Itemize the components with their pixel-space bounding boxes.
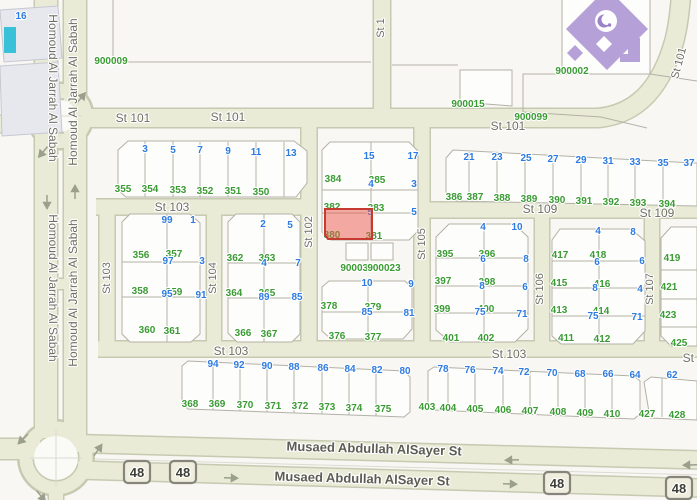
unit-number-label: 11 bbox=[251, 147, 262, 158]
parcel-number-label: 423 bbox=[660, 310, 677, 321]
parcel-number-label: 428 bbox=[669, 410, 686, 421]
unit-number-label: 25 bbox=[520, 153, 532, 164]
unit-number-label: 91 bbox=[195, 290, 207, 301]
unit-number-label: 66 bbox=[602, 369, 614, 380]
unit-number-label: 15 bbox=[363, 151, 375, 162]
parcel-number-label: 371 bbox=[265, 401, 282, 412]
parcel-number-label: 410 bbox=[604, 409, 621, 420]
parcel-number-label: 402 bbox=[478, 333, 495, 344]
unit-number-label: 4 bbox=[637, 284, 643, 295]
street-name-label: St 101 bbox=[116, 111, 151, 125]
parcel-number-label: 409 bbox=[577, 408, 594, 419]
street-name-label: St 106 bbox=[534, 273, 546, 305]
parcel-number-label: 408 bbox=[550, 407, 567, 418]
unit-number-label: 27 bbox=[547, 154, 559, 165]
unit-number-label: 31 bbox=[602, 156, 614, 167]
star-icon bbox=[608, 23, 612, 27]
unit-number-label: 23 bbox=[491, 152, 503, 163]
parcel-number-label: 368 bbox=[182, 399, 199, 410]
parcel-number-label: 900023 bbox=[367, 263, 401, 274]
parcel-number-label: 390 bbox=[549, 195, 566, 206]
parcel-number-label: 393 bbox=[630, 198, 647, 209]
parcel-number-label: 355 bbox=[115, 184, 132, 195]
unit-number-label: 6 bbox=[639, 256, 645, 267]
parcel-number-label: 384 bbox=[325, 174, 342, 185]
unit-number-label: 7 bbox=[197, 145, 203, 156]
unit-number-label: 4 bbox=[595, 226, 601, 237]
unit-number-label: 21 bbox=[463, 152, 475, 163]
parcel-number-label: 374 bbox=[346, 403, 363, 414]
unit-number-label: 10 bbox=[361, 278, 373, 289]
unit-number-label: 84 bbox=[344, 364, 356, 375]
unit-number-label: 3 bbox=[411, 179, 417, 190]
unit-number-label: 1 bbox=[190, 215, 196, 226]
parcel-number-label: 389 bbox=[521, 194, 538, 205]
street-name-label: St 103 bbox=[492, 347, 527, 361]
unit-number-label: 33 bbox=[629, 157, 641, 168]
svg-text:48: 48 bbox=[130, 465, 144, 480]
unit-number-label: 78 bbox=[437, 364, 449, 375]
unit-number-label: 71 bbox=[516, 309, 528, 320]
unit-number-label: 70 bbox=[546, 368, 558, 379]
unit-number-label: 71 bbox=[631, 312, 643, 323]
parcel-number-label: 403 bbox=[419, 402, 436, 413]
parcel-number-label: 373 bbox=[319, 402, 336, 413]
street-name-label: St 102 bbox=[303, 216, 315, 248]
unit-number-label: 8 bbox=[592, 283, 598, 294]
unit-number-label: 97 bbox=[162, 256, 174, 267]
street-name-label: St 103 bbox=[683, 351, 697, 365]
parcel-number-label: 394 bbox=[659, 199, 676, 210]
unit-number-label: 2 bbox=[260, 219, 266, 230]
parcel-number-label: 366 bbox=[235, 328, 252, 339]
parcel-number-label: 352 bbox=[197, 186, 214, 197]
parcel-number-label: 360 bbox=[139, 325, 156, 336]
unit-number-label: 5 bbox=[170, 145, 176, 156]
unit-number-label: 8 bbox=[523, 254, 529, 265]
parcel-number-label: 386 bbox=[446, 192, 463, 203]
unit-number-label: 6 bbox=[480, 254, 486, 265]
parcel-number-label: 372 bbox=[292, 401, 309, 412]
street-name-label: St 103 bbox=[214, 344, 249, 358]
unit-number-label: 74 bbox=[492, 366, 504, 377]
parcel-number-label: 356 bbox=[133, 250, 150, 261]
unit-number-label: 72 bbox=[518, 367, 530, 378]
unit-number-label: 81 bbox=[403, 308, 415, 319]
unit-number-label: 5 bbox=[287, 220, 293, 231]
parcel-number-label: 395 bbox=[437, 249, 454, 260]
unit-number-label: 3 bbox=[142, 144, 148, 155]
parcel-number-label: 399 bbox=[434, 304, 451, 315]
svg-text:48: 48 bbox=[550, 476, 564, 491]
street-name-label: St 104 bbox=[207, 262, 219, 294]
unit-number-label: 13 bbox=[285, 148, 297, 159]
pool-feature bbox=[4, 27, 16, 53]
parcel-number-label: 419 bbox=[664, 253, 681, 264]
unit-number-label: 10 bbox=[511, 222, 523, 233]
parcel-number-label: 397 bbox=[435, 276, 452, 287]
unit-number-label: 4 bbox=[480, 222, 486, 233]
highlighted-parcel[interactable] bbox=[325, 209, 372, 239]
street-name-label: St 103 bbox=[101, 262, 113, 294]
parcel-number-label: 358 bbox=[132, 286, 149, 297]
parcel-number-label: 417 bbox=[552, 250, 569, 261]
map-svg: St 101St 101St 101St 101St 1St 103St 103… bbox=[0, 0, 697, 500]
unit-number-label: 9 bbox=[225, 146, 231, 157]
parcel-number-label: 354 bbox=[142, 184, 159, 195]
parcel-number-label: 900009 bbox=[94, 56, 128, 67]
unit-number-label: 95 bbox=[161, 289, 173, 300]
parcel-number-label: 353 bbox=[170, 185, 187, 196]
parcel-number-label: 388 bbox=[494, 193, 511, 204]
parcel-number-label: 391 bbox=[576, 196, 593, 207]
unit-number-label: 37 bbox=[683, 158, 695, 169]
parcel-number-label: 378 bbox=[321, 301, 338, 312]
unit-number-label: 99 bbox=[161, 215, 173, 226]
street-name-label: St 103 bbox=[155, 200, 190, 214]
unit-number-label: 75 bbox=[587, 311, 599, 322]
street-name-label: St 101 bbox=[211, 110, 246, 124]
unit-number-label: 94 bbox=[207, 359, 219, 370]
parcel-number-label: 415 bbox=[551, 278, 568, 289]
svg-text:48: 48 bbox=[672, 481, 686, 496]
parcel-number-label: 362 bbox=[227, 253, 244, 264]
street-name-label: St 107 bbox=[644, 273, 656, 305]
parcel-number-label: 411 bbox=[558, 333, 575, 344]
parcel-number-label: 350 bbox=[253, 187, 270, 198]
parcel-number-label: 406 bbox=[495, 405, 512, 416]
parcel-number-label: 900002 bbox=[555, 66, 589, 77]
parcel-number-label: 351 bbox=[225, 186, 242, 197]
unit-number-label: 8 bbox=[630, 227, 636, 238]
unit-number-label: 68 bbox=[574, 369, 586, 380]
unit-number-label: 92 bbox=[233, 360, 245, 371]
unit-number-label: 6 bbox=[522, 282, 528, 293]
parcel-number-label: 900015 bbox=[451, 99, 485, 110]
parcel-number-label: 421 bbox=[661, 282, 678, 293]
street-name-label: Homoud Al Jarrah Al Sabah bbox=[46, 14, 60, 161]
unit-number-label: 8 bbox=[479, 281, 485, 292]
unit-number-label: 7 bbox=[295, 258, 301, 269]
unit-number-label: 35 bbox=[657, 158, 669, 169]
route-shield-icon: 48 bbox=[124, 461, 150, 483]
street-name-label: Homoud Al Jarrah Al Sabah bbox=[46, 214, 60, 361]
parcel-number-label: 405 bbox=[467, 404, 484, 415]
route-shield-icon: 48 bbox=[544, 472, 570, 494]
parcel-number-label: 425 bbox=[671, 338, 688, 349]
route-shield-icon: 48 bbox=[666, 477, 692, 499]
unit-number-label: 17 bbox=[407, 151, 419, 162]
parcel-number-label: 900099 bbox=[514, 112, 548, 123]
parcel-number-label: 412 bbox=[594, 334, 611, 345]
unit-number-label: 4 bbox=[368, 179, 374, 190]
svg-text:48: 48 bbox=[176, 465, 190, 480]
unit-number-label: 85 bbox=[361, 307, 373, 318]
parcel-number-label: 367 bbox=[261, 329, 278, 340]
street-name-label: Homoud Al Jarrah Al Sabah bbox=[66, 219, 80, 366]
unit-number-label: 82 bbox=[371, 365, 383, 376]
route-shield-icon: 48 bbox=[170, 461, 196, 483]
parcel-number-label: 407 bbox=[522, 406, 539, 417]
unit-number-label: 3 bbox=[199, 256, 205, 267]
unit-number-label: 4 bbox=[261, 258, 267, 269]
unit-number-label: 29 bbox=[575, 155, 587, 166]
parcel-number-label: 392 bbox=[603, 197, 620, 208]
parcel-number-label: 361 bbox=[164, 326, 181, 337]
parcel-number-label: 401 bbox=[443, 333, 460, 344]
unit-number-label: 80 bbox=[399, 366, 411, 377]
unit-number-label: 90 bbox=[261, 361, 273, 372]
unit-number-label: 6 bbox=[594, 257, 600, 268]
parcel-number-label: 377 bbox=[365, 332, 382, 343]
unit-number-label: 85 bbox=[291, 292, 303, 303]
parcel-number-label: 387 bbox=[467, 192, 484, 203]
unit-number-label: 75 bbox=[474, 307, 486, 318]
parcel-number-label: 427 bbox=[639, 409, 656, 420]
street-name-label: Homoud Al Jarrah Al Sabah bbox=[66, 18, 80, 165]
unit-number-label: 86 bbox=[317, 363, 329, 374]
parcel-number-label: 376 bbox=[329, 331, 346, 342]
parcel-number-label: 369 bbox=[209, 399, 226, 410]
unit-number-label: 9 bbox=[408, 279, 414, 290]
unit-number-label: 16 bbox=[15, 11, 27, 22]
street-name-label: St 1 bbox=[375, 18, 387, 38]
map-canvas[interactable]: St 101St 101St 101St 101St 1St 103St 103… bbox=[0, 0, 697, 500]
parcel-number-label: 370 bbox=[237, 400, 254, 411]
unit-number-label: 88 bbox=[288, 362, 300, 373]
unit-number-label: 64 bbox=[629, 370, 641, 381]
parcel-number-label: 413 bbox=[551, 305, 568, 316]
street-name-label: St 105 bbox=[416, 228, 428, 260]
unit-number-label: 5 bbox=[411, 207, 417, 218]
parcel-number-label: 404 bbox=[440, 403, 457, 414]
unit-number-label: 76 bbox=[464, 365, 476, 376]
unit-number-label: 89 bbox=[258, 292, 270, 303]
unit-number-label: 62 bbox=[666, 370, 678, 381]
parcel-number-label: 364 bbox=[226, 288, 243, 299]
parcel-number-label: 375 bbox=[375, 404, 392, 415]
